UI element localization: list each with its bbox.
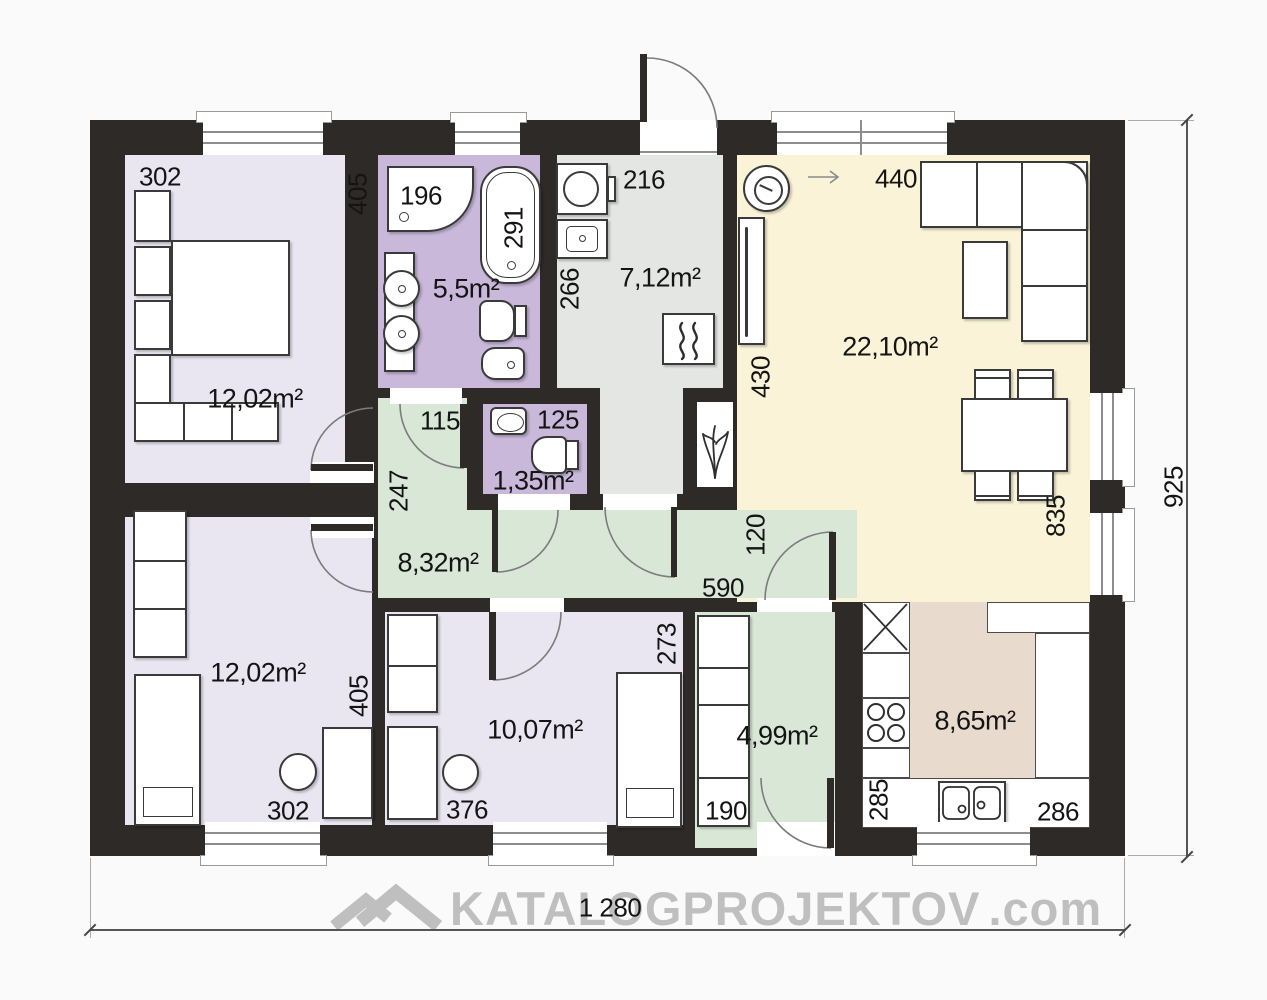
area-kitchen: 8,65m² (934, 706, 1015, 737)
dim-wc-width: 125 (537, 405, 579, 436)
bedroom2-door-leaf (311, 524, 373, 531)
dim-shower: 196 (400, 181, 442, 212)
area-living: 22,10m² (842, 332, 938, 363)
entrance-door-leaf (640, 54, 647, 122)
area-hall: 7,12m² (619, 263, 700, 294)
dim-total-height: 925 (1159, 466, 1190, 508)
bathroom-door-leaf (460, 404, 467, 468)
dim-kitchen-depth: 285 (864, 779, 895, 821)
dim-bedroom3-depth: 273 (652, 623, 683, 665)
area-corridor: 8,32m² (397, 548, 478, 579)
area-bedroom3: 10,07m² (487, 715, 583, 746)
bedroom3-door-leaf (489, 612, 496, 680)
dim-corridor-length: 590 (702, 573, 744, 604)
hall-door-leaf (671, 507, 677, 577)
dim-bedroom2-depth: 405 (344, 675, 375, 717)
mudroom-door-arc (761, 778, 831, 848)
dim-hall-width: 216 (623, 165, 665, 196)
area-mudroom: 4,99m² (736, 721, 817, 752)
dim-total-width: 1 280 (579, 893, 642, 924)
floor-plan: KATALOGPROJEKTOV.com (0, 0, 1267, 1000)
dim-living-depth: 430 (746, 356, 777, 398)
wc-door-leaf (492, 510, 498, 572)
dim-mudroom-closet: 190 (705, 796, 747, 827)
area-wc: 1,35m² (492, 466, 573, 497)
bedroom3-door-arc (493, 612, 561, 680)
corridor-living-door-arc (765, 532, 833, 600)
dim-hall-depth: 266 (555, 268, 586, 310)
area-bedroom2: 12,02m² (210, 658, 306, 689)
dim-corridor-passage: 120 (741, 514, 772, 556)
plant-icon (699, 408, 732, 484)
mudroom-door-leaf (827, 778, 834, 848)
bedroom1-door-arc (311, 408, 373, 470)
corridor-living-door-leaf (829, 532, 836, 600)
door-arcs (0, 0, 1267, 1000)
dim-bedroom2-width: 302 (267, 796, 309, 827)
dim-bedroom1-depth: 405 (343, 173, 374, 215)
dim-bedroom3-width: 376 (446, 795, 488, 826)
dim-corridor-depth: 247 (384, 470, 415, 512)
dim-kitchen-width: 286 (1037, 797, 1079, 828)
bedroom1-door-leaf (311, 464, 373, 471)
area-bathroom: 5,5m² (433, 274, 500, 305)
dim-dining-wall: 835 (1041, 495, 1072, 537)
entry-direction-arrow (808, 171, 838, 183)
wc-door-arc (496, 510, 558, 572)
dim-corridor-nook: 115 (420, 406, 460, 437)
entrance-door-arc (647, 58, 717, 128)
dimension-line-bottom (90, 929, 1125, 931)
dim-bathtub: 291 (499, 207, 530, 249)
bedroom2-door-arc (311, 530, 373, 592)
hall-door-arc (605, 507, 675, 577)
area-bedroom1: 12,02m² (207, 384, 303, 415)
dim-bedroom1-width: 302 (139, 162, 181, 193)
dim-living-width: 440 (875, 164, 917, 195)
